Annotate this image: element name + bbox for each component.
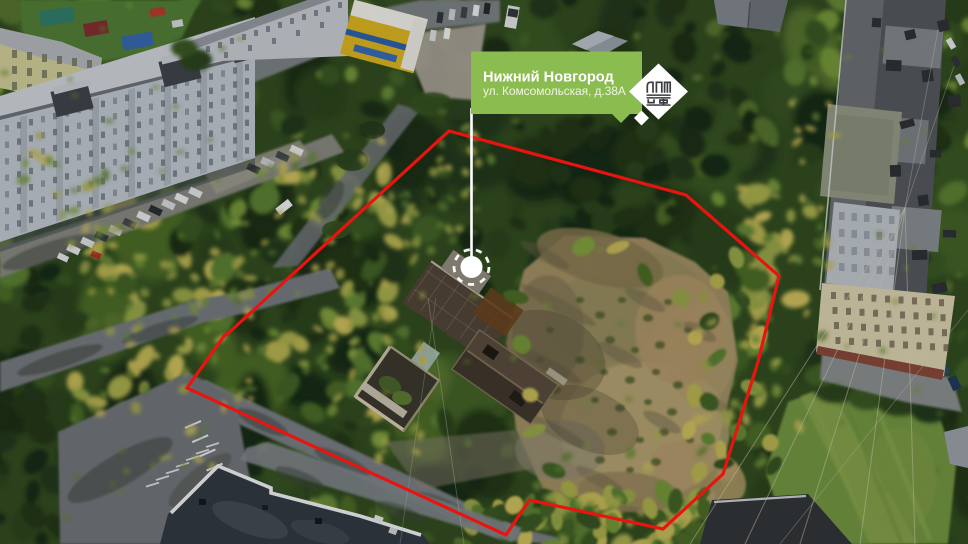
svg-text:ул. Комсомольская, д.38А: ул. Комсомольская, д.38А bbox=[483, 84, 626, 98]
